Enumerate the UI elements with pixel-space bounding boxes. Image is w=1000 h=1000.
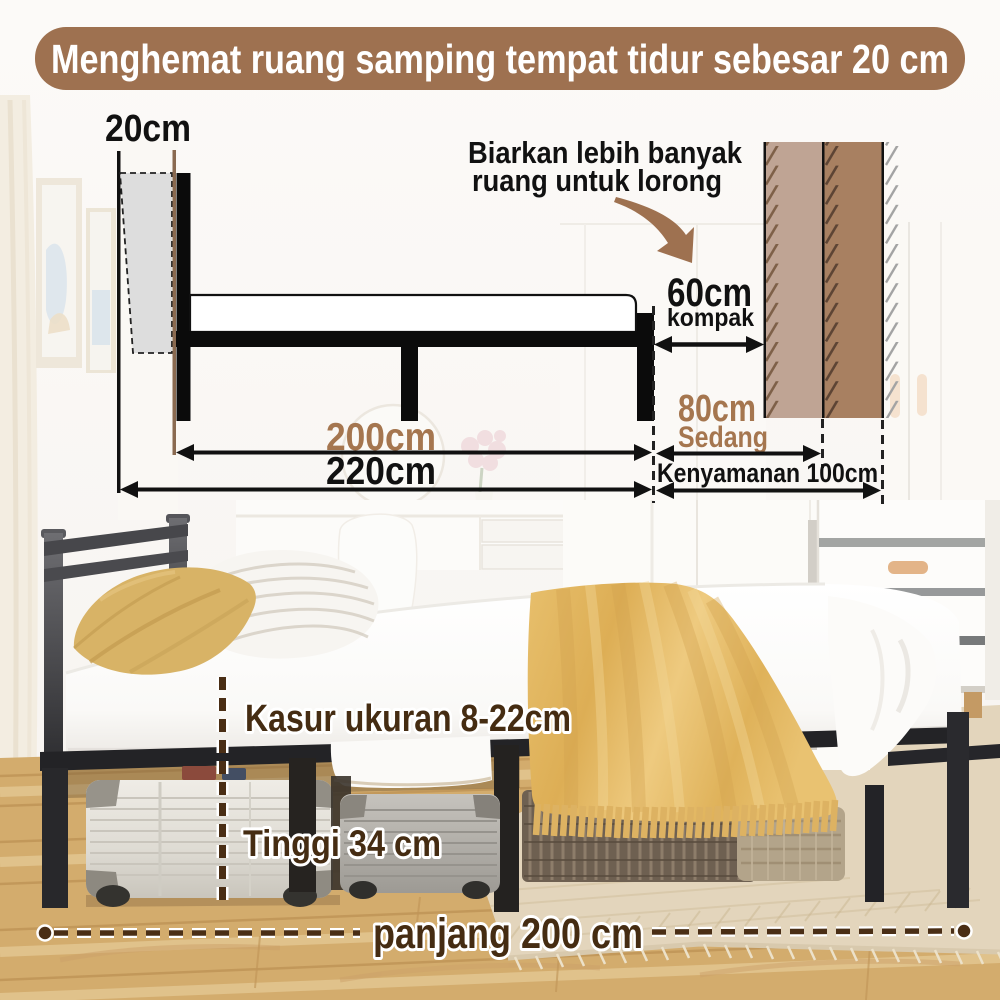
svg-text:Tinggi 34 cm: Tinggi 34 cm [243, 823, 441, 864]
svg-text:Kenyamanan 100cm: Kenyamanan 100cm [657, 458, 878, 488]
svg-text:20cm: 20cm [105, 108, 191, 150]
svg-text:220cm: 220cm [326, 450, 436, 493]
svg-text:kompak: kompak [667, 304, 754, 332]
svg-text:Kasur ukuran 8-22cm: Kasur ukuran 8-22cm [245, 698, 571, 740]
svg-text:ruang untuk lorong: ruang untuk lorong [472, 163, 722, 198]
svg-text:Sedang: Sedang [678, 421, 768, 454]
svg-text:panjang 200 cm: panjang 200 cm [373, 910, 643, 958]
svg-text:Menghemat ruang samping tempat: Menghemat ruang samping tempat tidur seb… [51, 36, 949, 82]
